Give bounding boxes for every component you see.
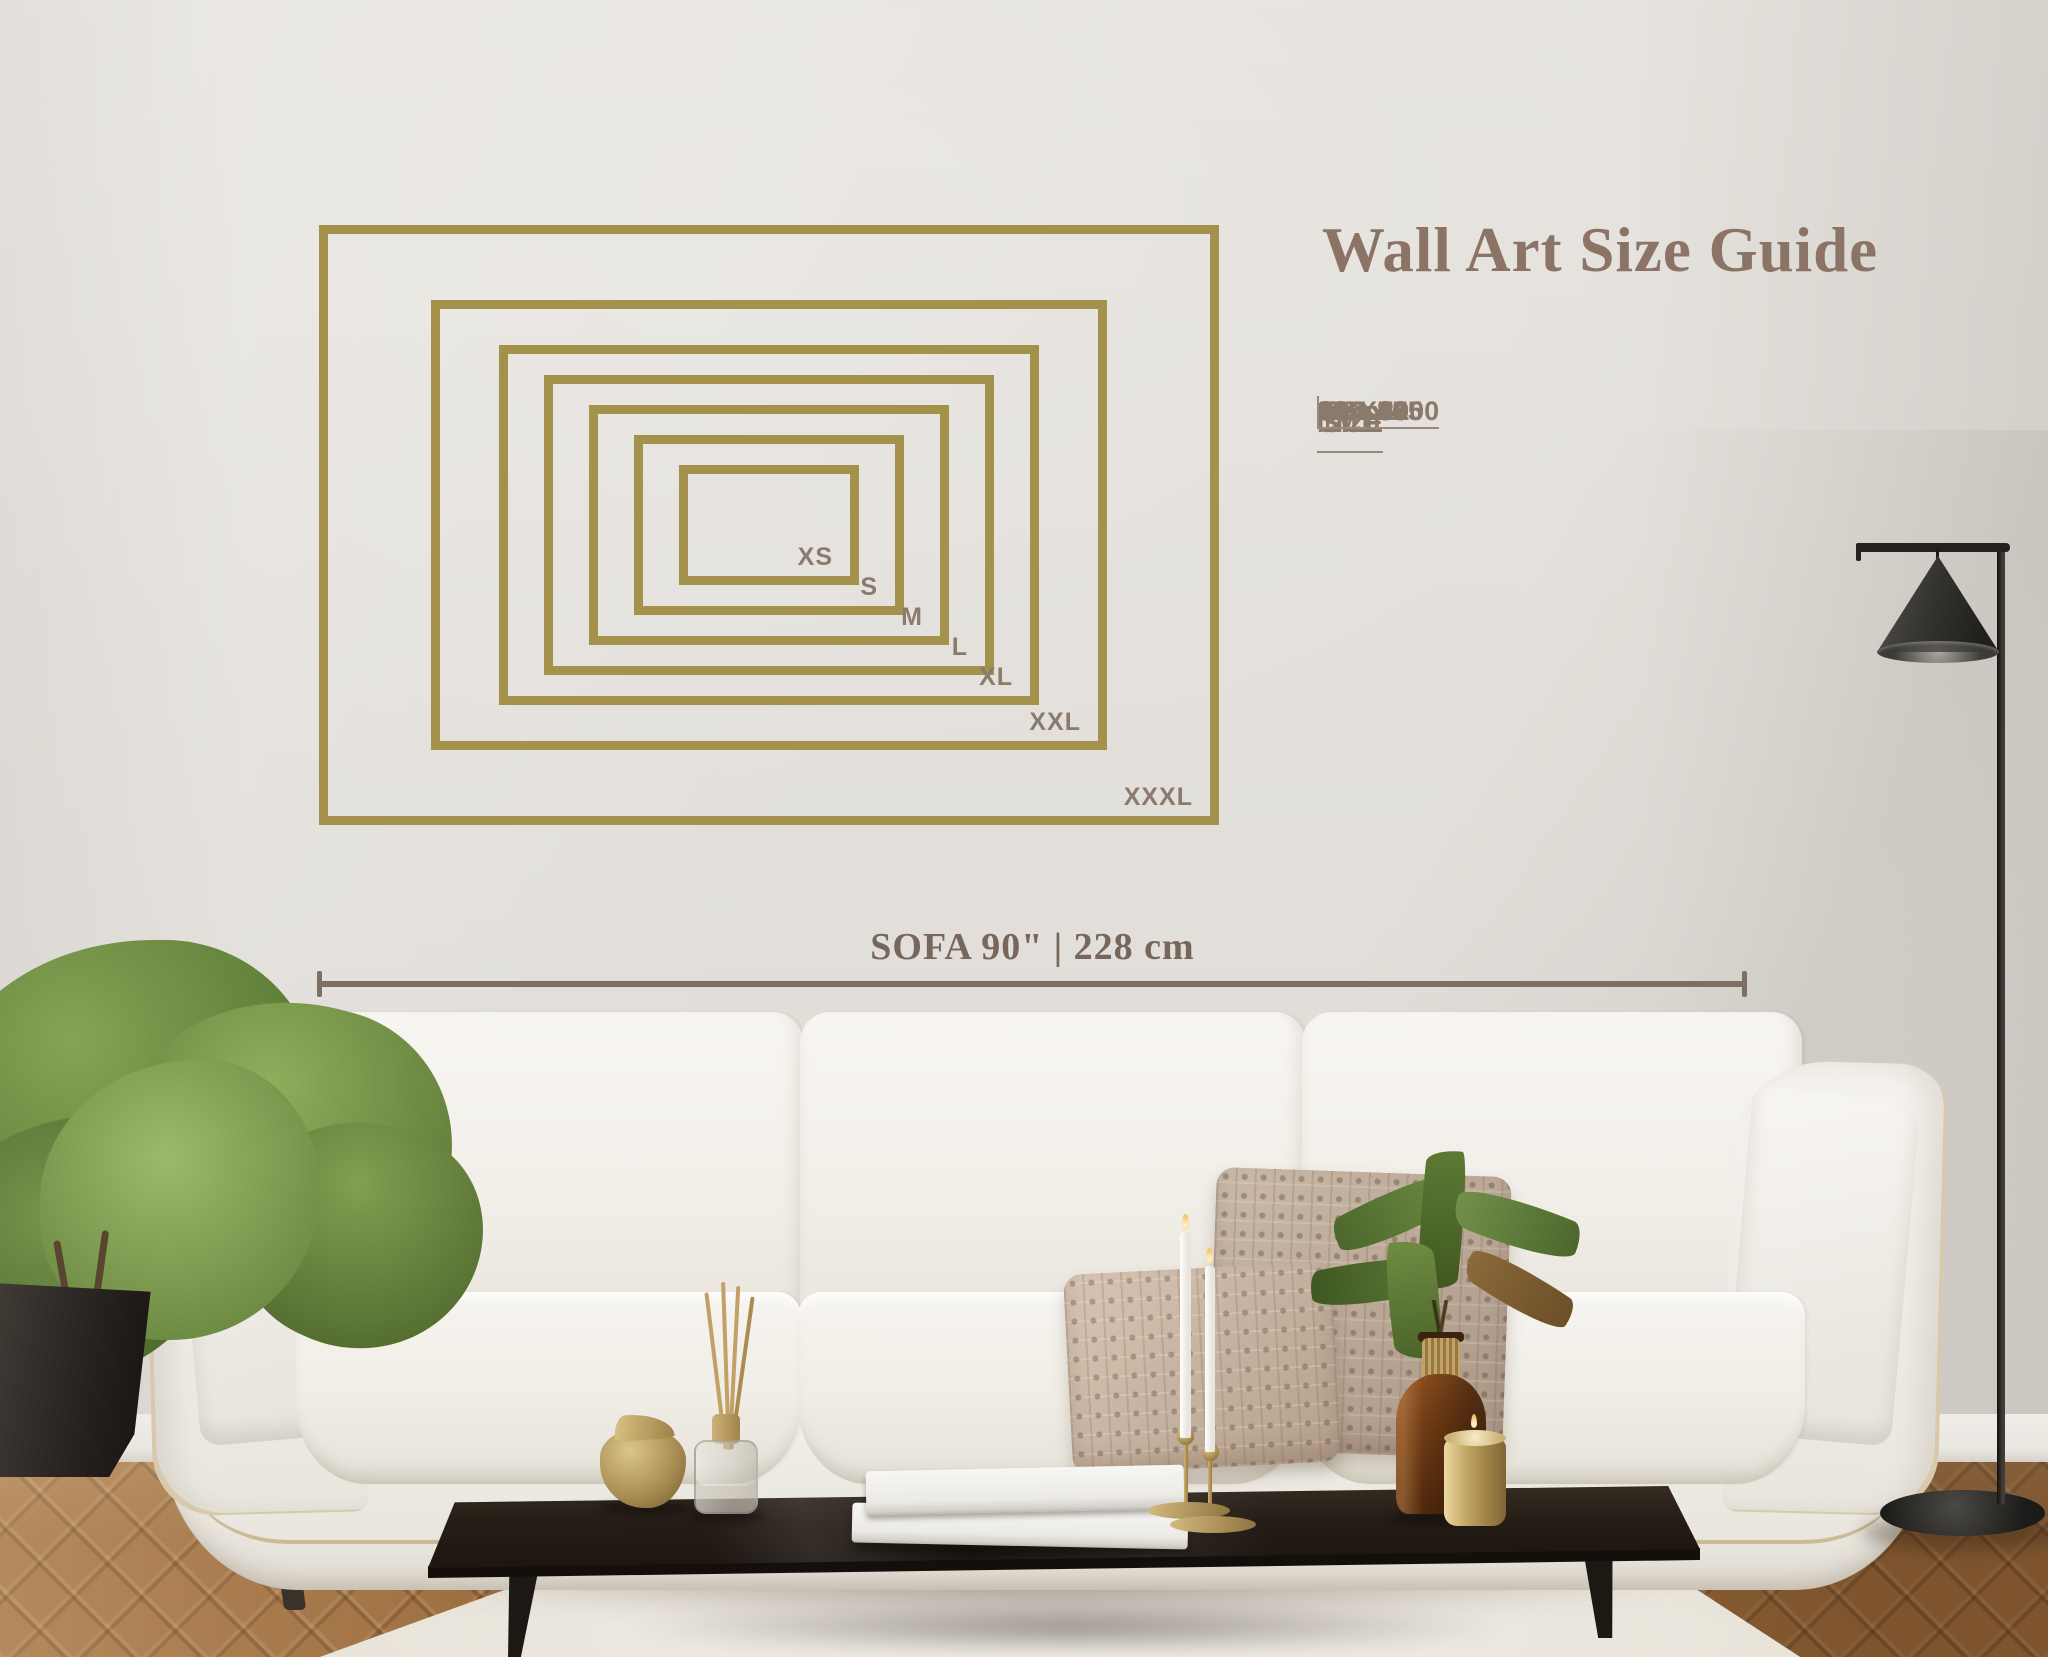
frame-label-xl: XL bbox=[893, 661, 1013, 693]
floor-lamp-arm bbox=[1856, 543, 2010, 552]
measure-tick-left bbox=[317, 971, 322, 997]
candlestick-stem bbox=[1184, 1438, 1188, 1512]
frame-label-m: M bbox=[803, 601, 923, 633]
room-scene: XS S M L XL XXL XXXL Wall Art Size Guide… bbox=[0, 0, 2048, 1657]
coffee-table-shadow bbox=[480, 1592, 1660, 1657]
candle-flame bbox=[1206, 1248, 1213, 1264]
measure-tick-right bbox=[1742, 971, 1747, 997]
sofa-width-line bbox=[319, 981, 1745, 987]
frame-label-l: L bbox=[848, 631, 968, 663]
beige-textured-pillow-front bbox=[1063, 1261, 1341, 1475]
table-cell-cm: 150 x 100 bbox=[1317, 396, 1439, 429]
frame-label-xxl: XXL bbox=[961, 706, 1081, 738]
frame-label-xs: XS bbox=[713, 541, 833, 573]
page-title: Wall Art Size Guide bbox=[1270, 208, 1930, 292]
floor-lamp-arm-end bbox=[1856, 543, 1861, 561]
floor-lamp-base bbox=[1880, 1490, 2045, 1536]
gold-candle bbox=[1444, 1438, 1506, 1526]
taper-candle bbox=[1180, 1232, 1191, 1438]
size-table: SIZE INCH CM XS 12 x 8 30 x 20 S 18 x 12… bbox=[1317, 396, 1768, 828]
candle-flame bbox=[1182, 1214, 1189, 1230]
reed-diffuser-jar bbox=[694, 1440, 758, 1514]
floor-lamp-pole bbox=[1997, 549, 2005, 1505]
candlestick-base bbox=[1170, 1516, 1256, 1533]
gold-candle-flame bbox=[1471, 1414, 1477, 1428]
taper-candle bbox=[1205, 1266, 1215, 1452]
frame-label-s: S bbox=[758, 571, 878, 603]
gold-candle-top bbox=[1444, 1430, 1506, 1446]
sofa-width-label: SOFA 90" | 228 cm bbox=[400, 924, 1665, 970]
book bbox=[866, 1465, 1185, 1516]
frame-label-xxxl: XXXL bbox=[1073, 781, 1193, 813]
floor-lamp-shade-rim bbox=[1877, 641, 1999, 663]
